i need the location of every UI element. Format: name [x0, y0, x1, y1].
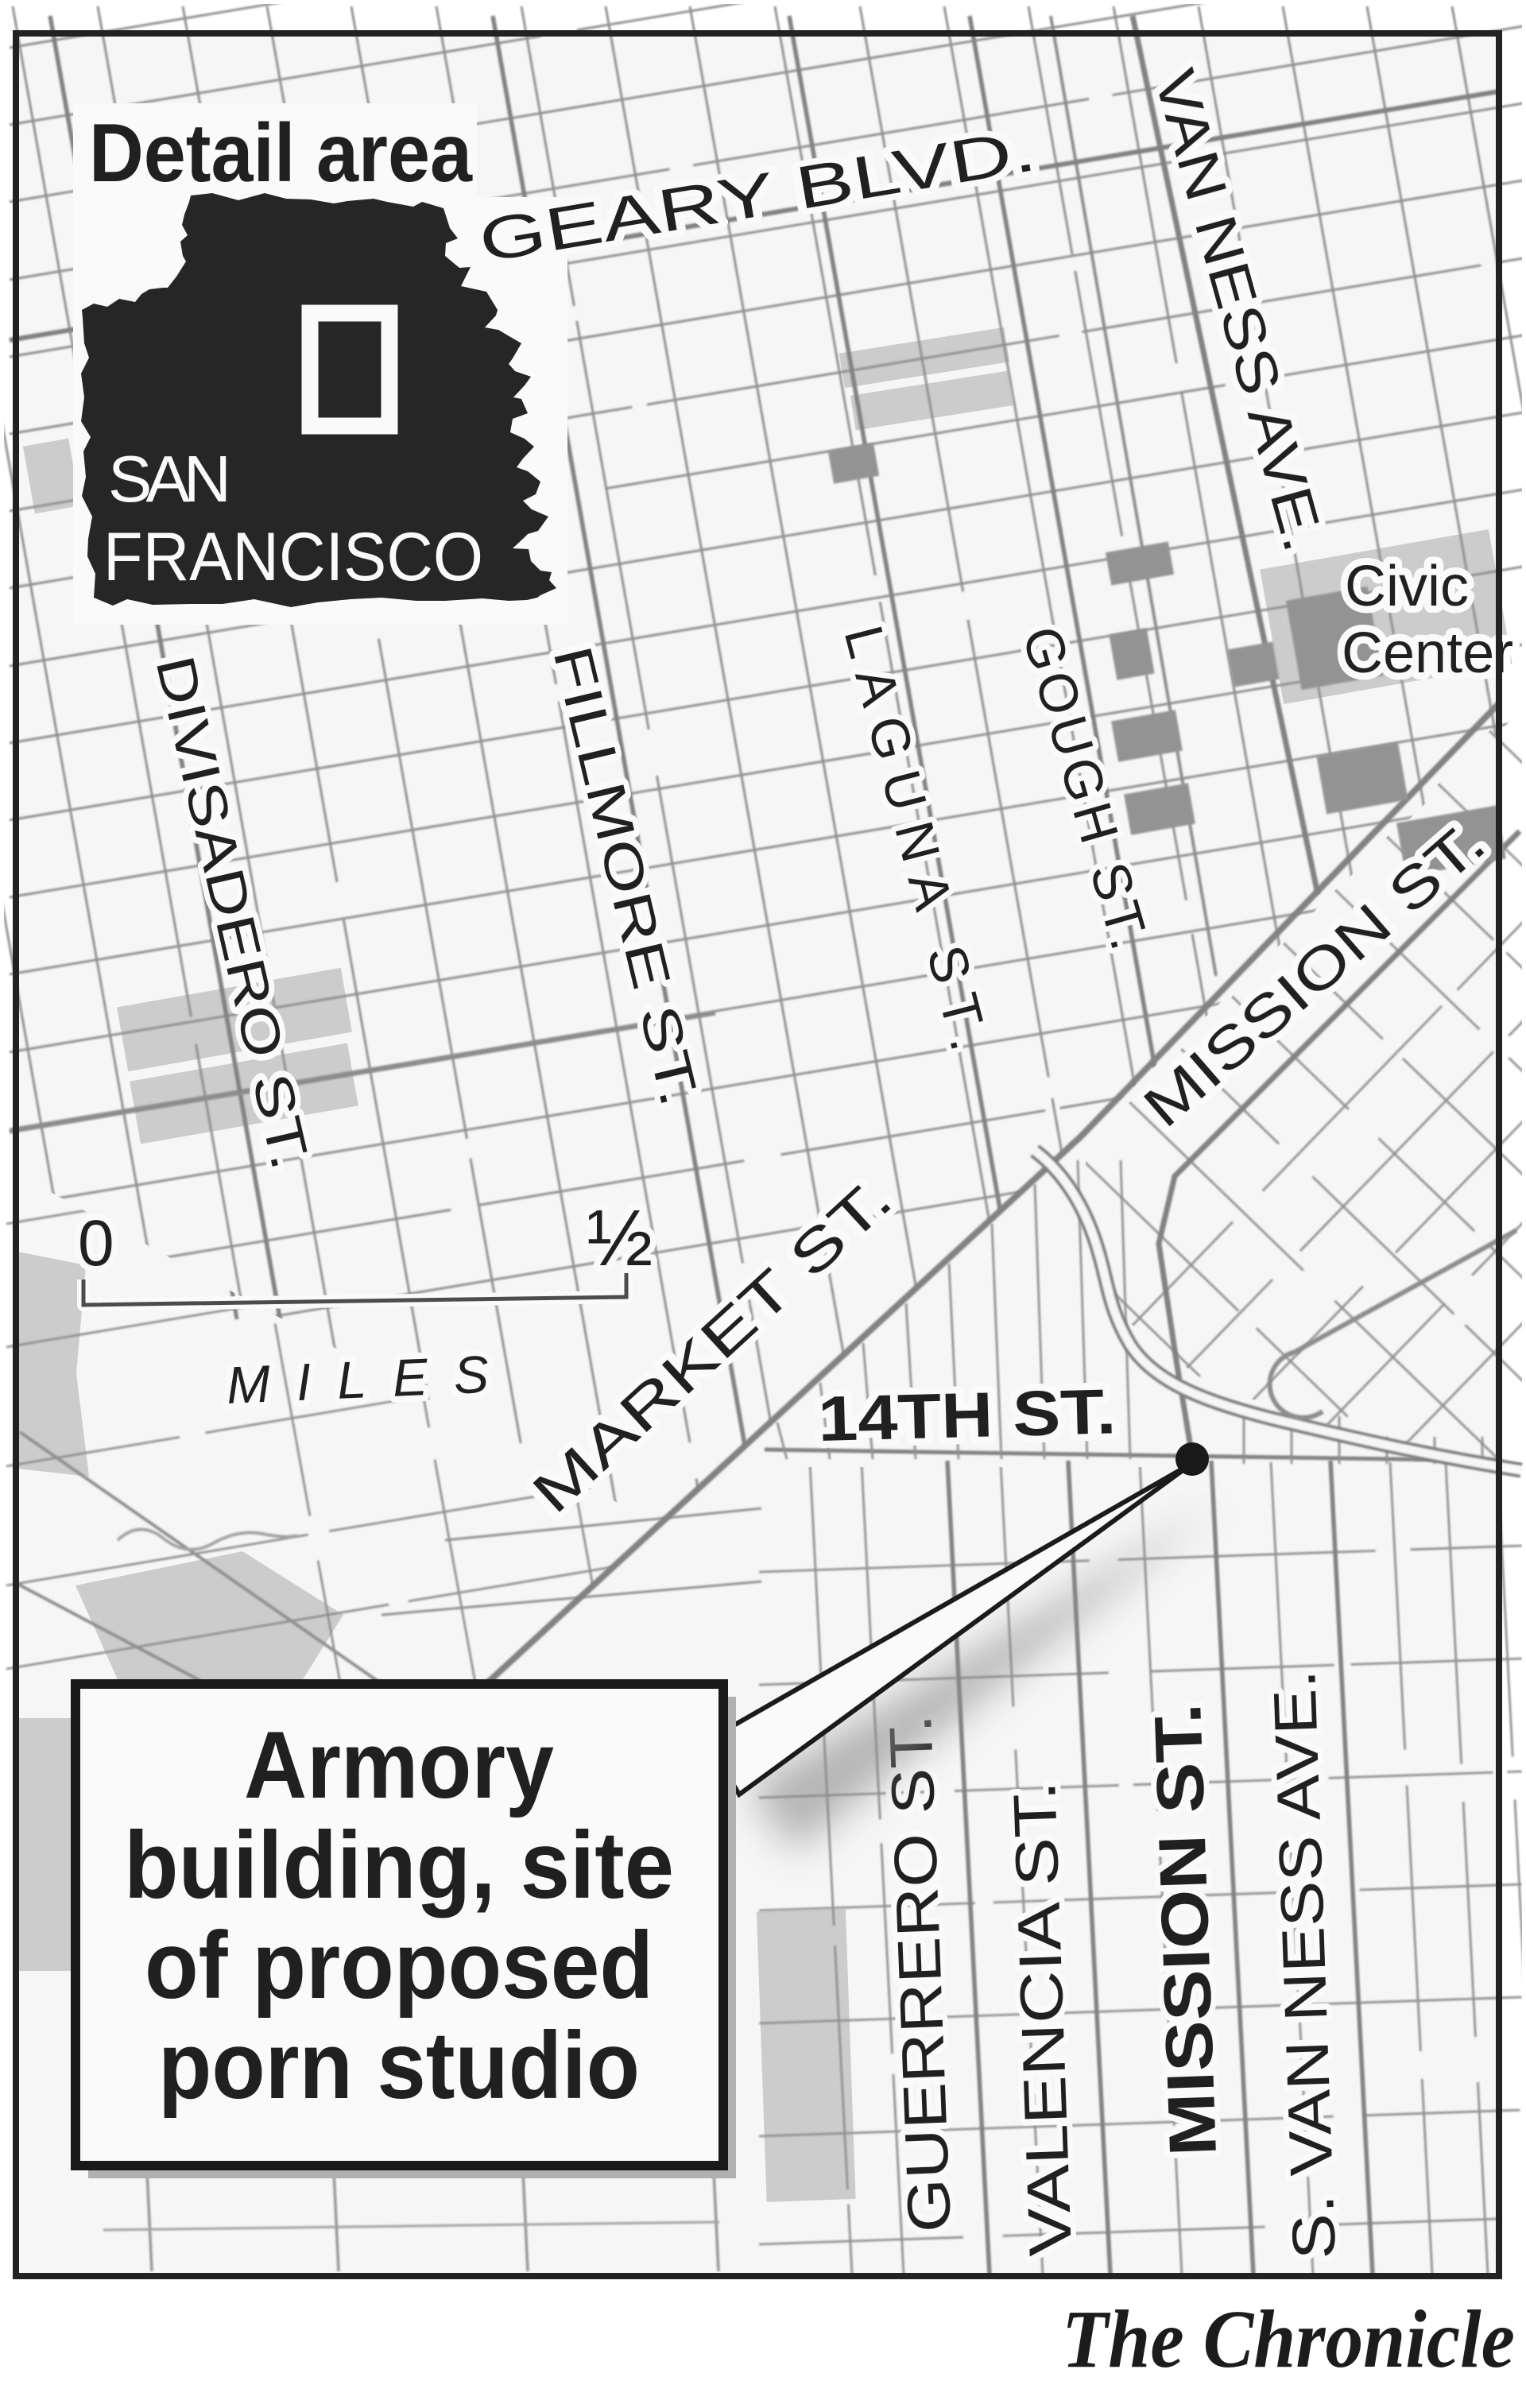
svg-text:The Chronicle: The Chronicle	[1062, 2294, 1515, 2385]
